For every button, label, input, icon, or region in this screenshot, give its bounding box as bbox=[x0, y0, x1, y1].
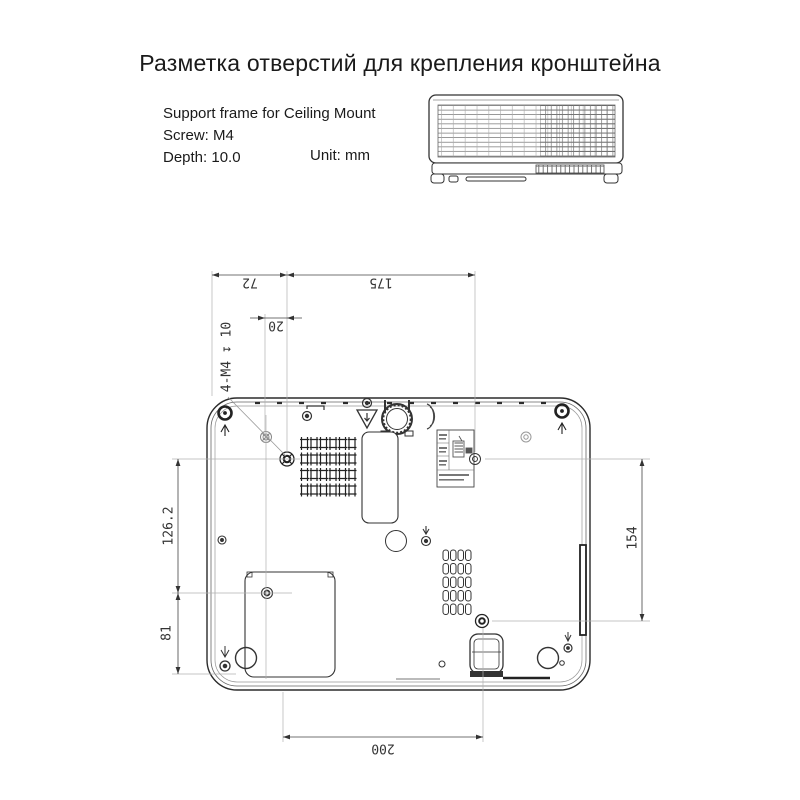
ceiling-mount-label bbox=[437, 430, 474, 487]
front-view-feet bbox=[431, 174, 618, 183]
bottom-left-panel bbox=[245, 572, 335, 677]
dim-200: 200 bbox=[371, 741, 394, 756]
dim-175: 175 bbox=[369, 275, 392, 290]
projector-bottom-view bbox=[207, 398, 590, 690]
lamp-cover bbox=[362, 432, 398, 523]
rear-adjustable-foot bbox=[470, 634, 503, 677]
right-edge-bar bbox=[580, 545, 586, 635]
technical-drawing-canvas: 72 175 20 4-M4 ↧ 10 126.2 81 154 200 bbox=[0, 0, 800, 800]
dim-126-2: 126.2 bbox=[162, 506, 177, 545]
dim-81: 81 bbox=[160, 625, 175, 641]
dim-72: 72 bbox=[242, 275, 258, 290]
projector-front-view bbox=[429, 95, 623, 183]
drawing-page: Разметка отверстий для крепления кронште… bbox=[0, 0, 800, 800]
dim-154: 154 bbox=[626, 526, 641, 550]
dim-20: 20 bbox=[268, 318, 284, 333]
dim-4m4-callout: 4-M4 ↧ 10 bbox=[220, 322, 235, 392]
